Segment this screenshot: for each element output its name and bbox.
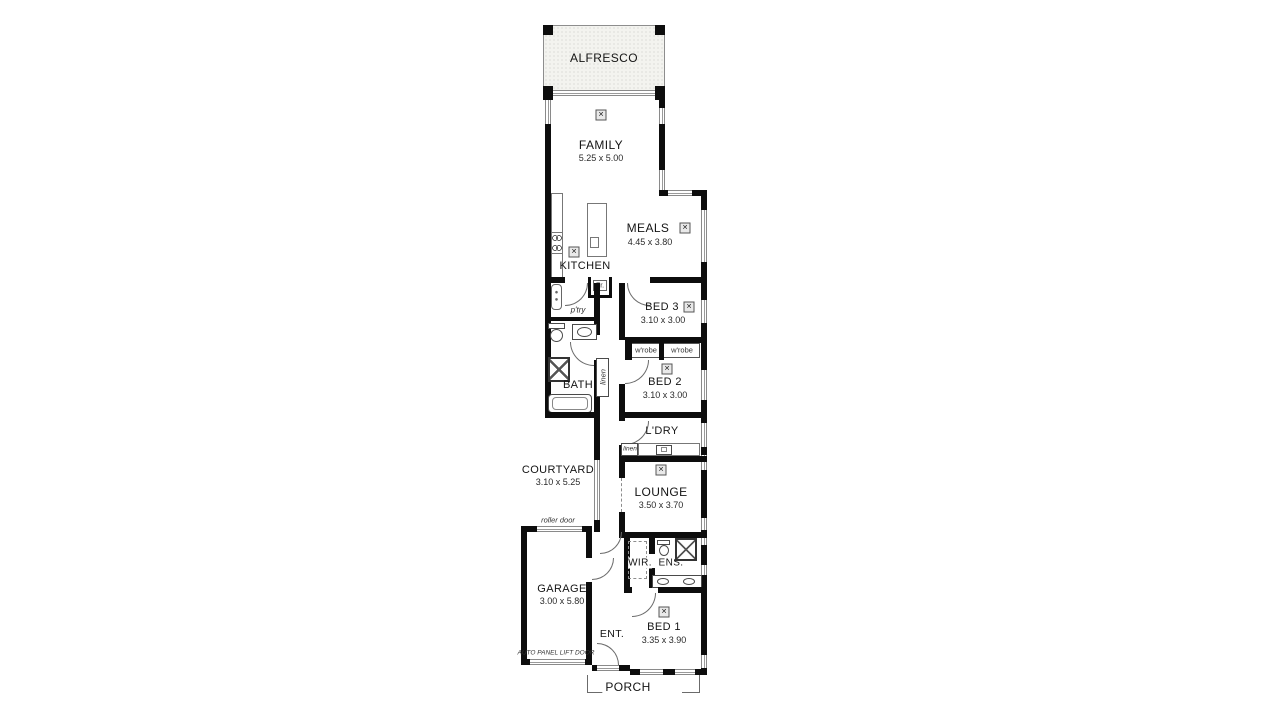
window (701, 518, 707, 530)
bed3-dims: 3.10 x 3.00 (641, 315, 686, 325)
wall (625, 343, 632, 360)
wall (545, 412, 600, 418)
ceiling-fan-icon: ✕ (569, 247, 580, 258)
wall (649, 538, 655, 554)
window (701, 423, 707, 447)
courtyard-dims: 3.10 x 5.25 (536, 477, 581, 487)
toilet-bowl-icon (550, 329, 563, 342)
linen-label: linen (599, 369, 608, 385)
wall (521, 659, 530, 665)
wrobe-left-label: w'robe (635, 346, 657, 355)
basin-icon (683, 578, 695, 585)
island-bench (587, 203, 607, 257)
wall (521, 532, 527, 665)
wall (701, 470, 707, 518)
window (701, 655, 707, 668)
ceiling-fan-icon: ✕ (684, 302, 695, 313)
kitchen-label: KITCHEN (559, 260, 610, 272)
wall (619, 512, 625, 532)
wall (701, 190, 707, 210)
wall (619, 283, 625, 340)
wall (624, 587, 632, 593)
wall (521, 526, 537, 532)
trough-drain (661, 447, 667, 452)
wall (630, 669, 640, 675)
window (701, 565, 707, 575)
ceiling-fan-icon: ✕ (656, 465, 667, 476)
window (701, 210, 707, 262)
door-arc (597, 643, 619, 665)
wall (543, 25, 553, 35)
ceiling-fan-icon: ✕ (662, 364, 673, 375)
front-door-opening (597, 665, 619, 671)
wall (659, 124, 665, 170)
courtyard-label: COURTYARD (522, 464, 594, 476)
wall (695, 669, 707, 675)
window (675, 669, 695, 675)
bed1-dims: 3.35 x 3.90 (642, 635, 687, 645)
sliding-door (553, 90, 655, 96)
door-arc (625, 360, 649, 384)
roller-door-opening (537, 526, 582, 532)
door-arc (600, 532, 622, 554)
wall (650, 277, 707, 283)
window (545, 100, 551, 124)
open-ceiling-line (621, 478, 622, 512)
door-arc (592, 558, 614, 580)
porch-outline (682, 692, 700, 693)
bed1-label: BED 1 (647, 621, 681, 633)
laundry-trough-icon (551, 284, 562, 310)
alfresco-label: ALFRESCO (570, 51, 638, 65)
cooktop-icon (551, 232, 563, 254)
porch-outline (587, 675, 588, 693)
wrobe-right-label: w'robe (671, 346, 693, 355)
wall (545, 93, 551, 100)
ent-label: ENT. (600, 628, 624, 640)
ldry-label: L'DRY (645, 425, 678, 437)
ceiling-fan-icon: ✕ (659, 607, 670, 618)
bed2-label: BED 2 (648, 376, 682, 388)
basin-icon (577, 327, 592, 337)
garage-label: GARAGE (537, 583, 586, 595)
wall (594, 520, 600, 532)
family-label: FAMILY (579, 138, 623, 152)
wall (659, 190, 668, 196)
auto-panel-lift-door-label: AUTO PANEL LIFT DOOR (518, 650, 595, 657)
wall (545, 317, 600, 321)
ceiling-fan-icon: ✕ (680, 223, 691, 234)
bed3-label: BED 3 (645, 301, 679, 313)
door-arc (632, 593, 656, 617)
floor-plan: ALFRESCO PORCH roll (500, 20, 715, 700)
window (701, 300, 707, 323)
pantry-label: p'try (571, 306, 586, 315)
window (659, 108, 665, 124)
door-arc (570, 342, 594, 366)
ceiling-fan-icon: ✕ (596, 110, 607, 121)
wall (659, 93, 665, 108)
shower-icon (675, 538, 697, 561)
wall (655, 25, 665, 35)
porch-label: PORCH (602, 680, 653, 694)
window (701, 370, 707, 400)
porch-outline (699, 675, 700, 693)
wall (619, 384, 625, 412)
wall (619, 665, 630, 671)
window (659, 170, 665, 190)
meals-label: MEALS (627, 221, 670, 235)
wall (663, 669, 675, 675)
wall (586, 532, 592, 558)
wall (619, 412, 707, 418)
panel-lift-door-opening (530, 659, 585, 665)
bath-label: BATH (563, 379, 593, 391)
sink-icon (590, 237, 599, 248)
wall (701, 323, 707, 370)
garage-dims: 3.00 x 5.80 (540, 596, 585, 606)
basin-icon (657, 578, 669, 585)
wall (658, 587, 707, 593)
window (594, 460, 600, 520)
roller-door-label: roller door (541, 516, 575, 525)
wall (619, 462, 625, 478)
wall (588, 295, 612, 298)
wall (701, 447, 707, 455)
wall (701, 545, 707, 565)
family-dims: 5.25 x 5.00 (579, 153, 624, 163)
window (640, 669, 663, 675)
door-arc (565, 283, 588, 306)
toilet-bowl-icon (659, 545, 669, 556)
window (668, 190, 692, 196)
lounge-label: LOUNGE (634, 485, 687, 499)
bathtub-inner (552, 397, 588, 410)
wall (594, 415, 600, 460)
wir-label: WIR. (628, 558, 652, 569)
meals-dims: 4.45 x 3.80 (628, 237, 673, 247)
lounge-dims: 3.50 x 3.70 (639, 500, 684, 510)
wall (659, 343, 664, 360)
wall (619, 456, 707, 462)
linen-label: linen (623, 446, 637, 453)
wall (545, 277, 565, 283)
bed2-dims: 3.10 x 3.00 (643, 390, 688, 400)
